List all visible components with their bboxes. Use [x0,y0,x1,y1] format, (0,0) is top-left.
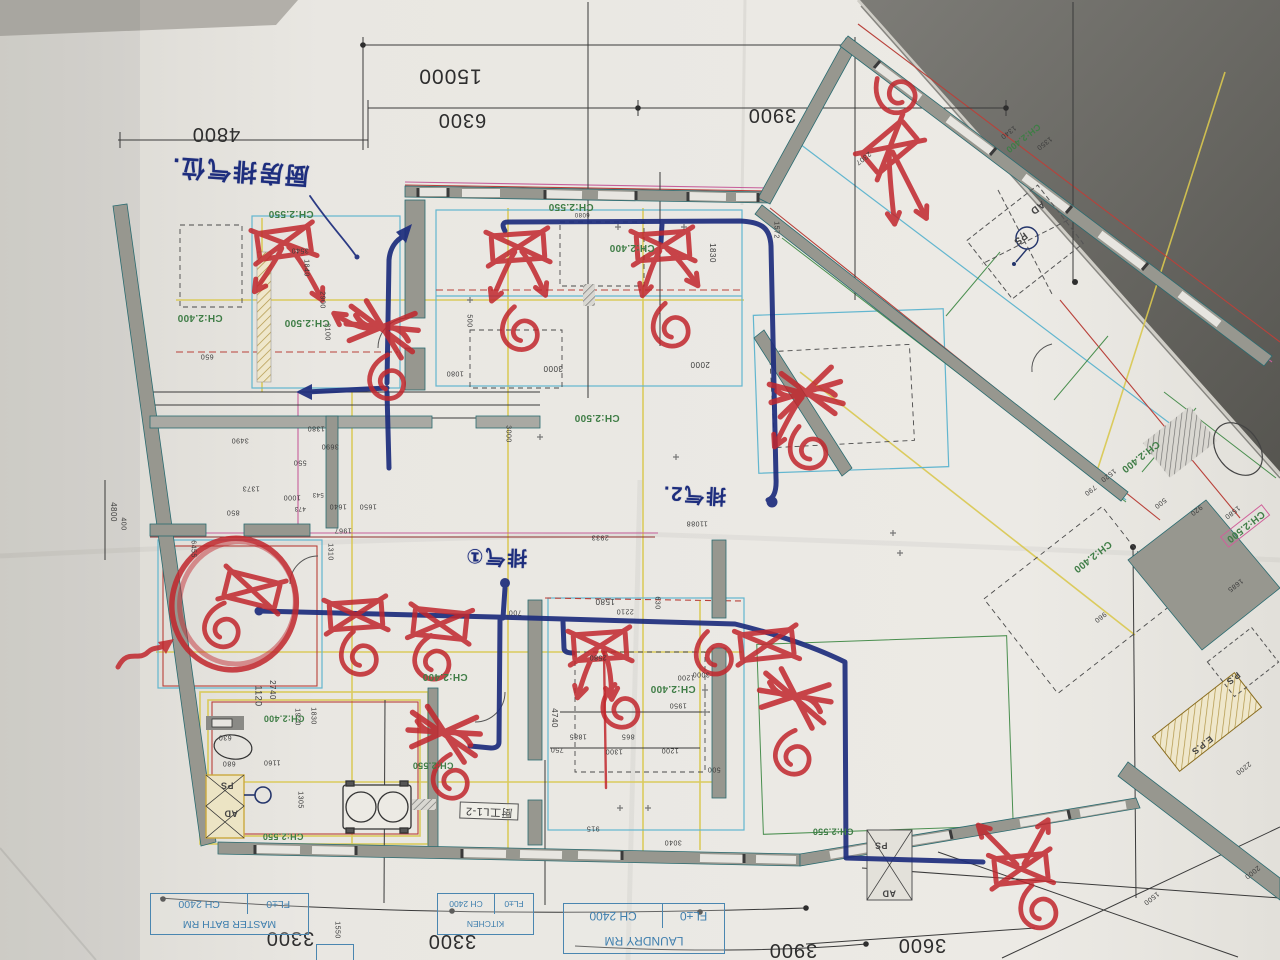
room-name: LAUNDRY RM [564,929,724,954]
room-name: KITCHEN [438,914,533,934]
titleblock-master-bath: MASTER BATH RM FL±0 CH 2400 [150,893,309,935]
blue-route-1-tail [387,392,389,468]
stove [343,781,411,833]
blue-stub-1 [503,588,505,618]
ceiling-height: CH 2400 [564,904,663,929]
ceiling-height: CH 2400 [151,894,248,914]
fl-level: FL±0 [495,894,533,914]
blue-endpoint-2 [767,497,778,508]
room-name: MASTER BATH RM [151,914,308,934]
titleblock-partial [316,944,354,960]
titleblock-kitchen: KITCHEN FL±0 CH 2400 [437,893,534,935]
shaft-ps-ad-left [206,775,244,838]
floor-plan-photo: 1500063004800390033003300390036001830157… [0,0,1280,960]
ceiling-height: CH 2400 [438,894,495,914]
hatch-block-2 [583,284,595,306]
hatch-block [412,799,436,810]
fl-level: FL±0 [248,894,308,914]
titleblock-laundry: LAUNDRY RM FL±0 CH 2400 [563,903,725,954]
shaft-ps-ad-right [867,830,912,900]
fl-level: FL±0 [663,904,724,929]
plan-drawing [0,0,1280,960]
